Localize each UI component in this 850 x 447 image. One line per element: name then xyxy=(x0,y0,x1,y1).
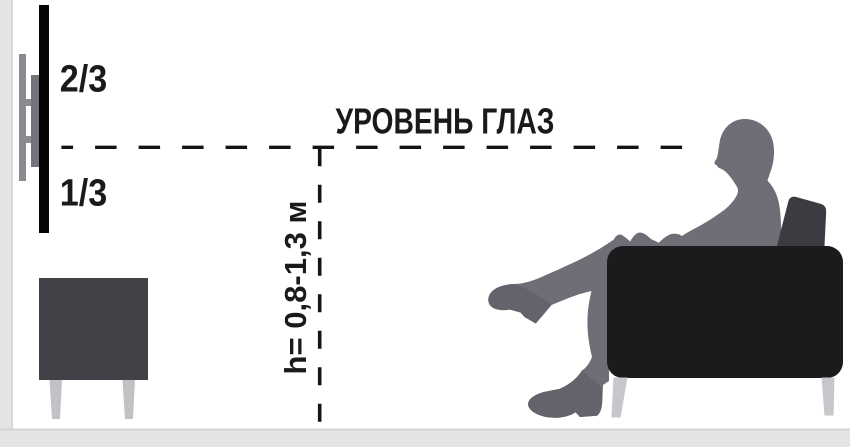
svg-text:h= 0,8-1,3 м: h= 0,8-1,3 м xyxy=(279,201,313,375)
svg-text:2/3: 2/3 xyxy=(60,59,108,101)
svg-text:1/3: 1/3 xyxy=(60,173,108,215)
svg-text:УРОВЕНЬ ГЛАЗ: УРОВЕНЬ ГЛАЗ xyxy=(336,101,555,142)
